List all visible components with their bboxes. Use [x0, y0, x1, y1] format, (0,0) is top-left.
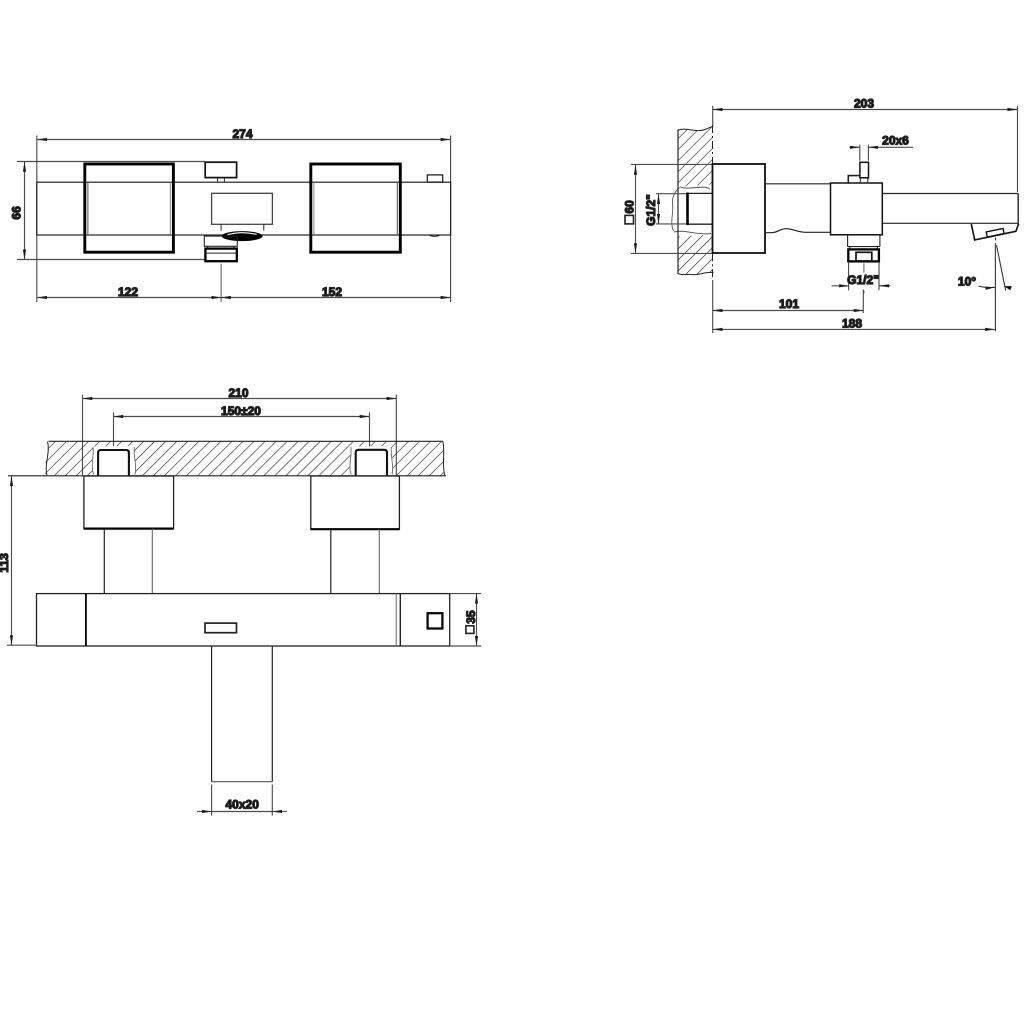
svg-text:150±20: 150±20: [221, 404, 261, 418]
svg-text:20x6: 20x6: [882, 134, 909, 148]
svg-text:G1/2": G1/2": [847, 273, 879, 287]
svg-text:203: 203: [854, 97, 874, 111]
svg-text:122: 122: [118, 285, 138, 299]
svg-text:10°: 10°: [958, 274, 976, 288]
svg-text:113: 113: [0, 553, 11, 573]
svg-text:60: 60: [622, 200, 636, 214]
svg-text:274: 274: [232, 127, 252, 141]
svg-text:188: 188: [842, 316, 862, 330]
svg-text:66: 66: [10, 206, 24, 220]
svg-text:210: 210: [228, 386, 248, 400]
svg-text:35: 35: [464, 610, 478, 624]
svg-text:101: 101: [779, 297, 799, 311]
svg-text:40x20: 40x20: [226, 798, 260, 812]
svg-text:152: 152: [322, 285, 342, 299]
svg-text:G1/2": G1/2": [644, 194, 658, 226]
